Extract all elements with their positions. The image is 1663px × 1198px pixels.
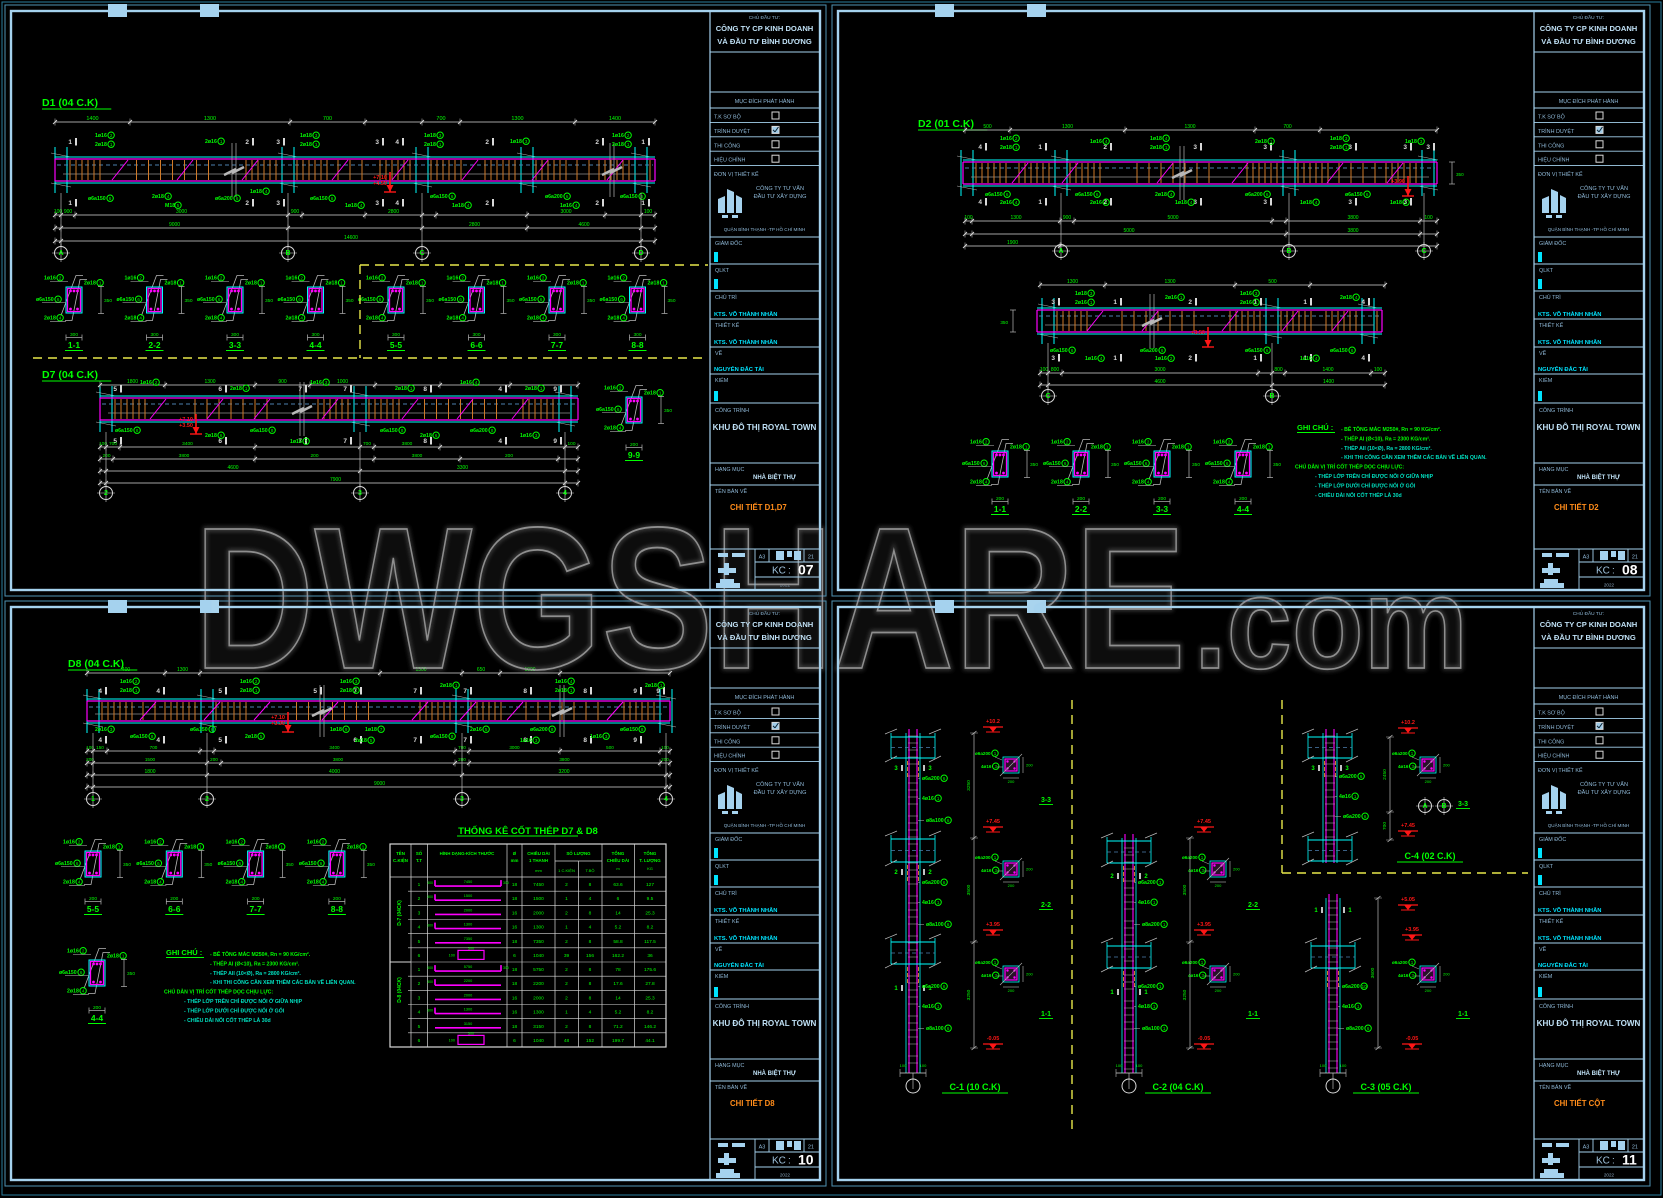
svg-text:18: 18	[512, 896, 518, 902]
svg-text:4: 4	[418, 925, 421, 931]
svg-text:100: 100	[1320, 1063, 1327, 1068]
svg-text:4: 4	[395, 139, 399, 146]
svg-text:3: 3	[1263, 199, 1267, 206]
svg-text:2ø18: 2ø18	[84, 281, 96, 287]
svg-text:350: 350	[346, 298, 354, 304]
svg-text:CHÚ DẪN VỊ TRÍ CỐT THÉP DỌC CH: CHÚ DẪN VỊ TRÍ CỐT THÉP DỌC CHỊU LỰC:	[1295, 463, 1404, 471]
svg-text:3800: 3800	[1347, 215, 1358, 221]
svg-text:5-5: 5-5	[87, 904, 100, 914]
svg-text:350: 350	[1000, 320, 1008, 325]
svg-text:8.2: 8.2	[647, 1010, 654, 1016]
svg-text:300: 300	[427, 980, 433, 984]
svg-text:ø8a100: ø8a100	[926, 1026, 944, 1032]
svg-text:1: 1	[1113, 299, 1117, 306]
svg-text:KTS. VÕ THÀNH NHÂN: KTS. VÕ THÀNH NHÂN	[1538, 311, 1601, 318]
svg-text:1: 1	[1303, 299, 1307, 306]
svg-text:1800: 1800	[144, 769, 155, 775]
svg-text:T.K SƠ BỘ: T.K SƠ BỘ	[1538, 710, 1565, 717]
svg-text:4ø16: 4ø16	[1188, 973, 1199, 978]
svg-text:2ø18: 2ø18	[608, 316, 620, 322]
svg-text:T.T: T.T	[416, 858, 422, 863]
svg-text:KIỂM: KIỂM	[1539, 973, 1553, 980]
svg-text:THỐNG KÊ CỐT THÉP D7 & D8: THỐNG KÊ CỐT THÉP D7 & D8	[458, 825, 598, 837]
svg-text:4-4: 4-4	[1237, 504, 1250, 514]
svg-text:6: 6	[513, 1038, 516, 1044]
svg-text:4ø16: 4ø16	[1398, 973, 1409, 978]
svg-text:300: 300	[150, 332, 158, 338]
svg-text:4: 4	[664, 796, 668, 803]
svg-text:4: 4	[98, 737, 102, 744]
svg-text:2: 2	[245, 200, 249, 207]
svg-text:2: 2	[104, 490, 108, 497]
svg-text:mm: mm	[535, 868, 542, 873]
svg-text:700: 700	[1283, 124, 1292, 130]
svg-text:1300: 1300	[511, 116, 523, 122]
svg-text:+7.45: +7.45	[1401, 823, 1415, 829]
svg-text:THI CÔNG: THI CÔNG	[714, 738, 740, 745]
svg-text:2ø18: 2ø18	[1091, 445, 1103, 451]
svg-text:1: 1	[565, 925, 568, 931]
svg-text:200: 200	[1008, 779, 1015, 784]
svg-text:4: 4	[498, 438, 502, 445]
svg-text:3: 3	[1051, 355, 1055, 362]
svg-text:2-2: 2-2	[1248, 902, 1258, 909]
svg-text:B: B	[1441, 803, 1446, 810]
svg-text:2ø18: 2ø18	[1213, 480, 1225, 486]
svg-text:2ø18: 2ø18	[1330, 145, 1342, 151]
svg-text:- BÊ TÔNG MÁC M250#, Rn = 90: - BÊ TÔNG MÁC M250#, Rn = 90 KG/cm².	[1341, 425, 1442, 433]
svg-text:1-1: 1-1	[1041, 1011, 1051, 1018]
svg-text:5: 5	[218, 737, 222, 744]
svg-text:200: 200	[1425, 988, 1432, 993]
svg-text:200: 200	[310, 453, 318, 459]
svg-text:mm: mm	[511, 858, 519, 863]
svg-text:2ø16: 2ø16	[1240, 300, 1252, 306]
svg-text:1ø16: 1ø16	[67, 949, 79, 955]
svg-text:1: 1	[565, 1010, 568, 1016]
svg-text:2ø18: 2ø18	[525, 386, 537, 392]
svg-text:300: 300	[472, 332, 480, 338]
svg-text:ø6a150: ø6a150	[218, 861, 236, 867]
svg-text:2: 2	[1103, 144, 1107, 151]
svg-text:ø6a150: ø6a150	[130, 734, 148, 740]
svg-text:8-8: 8-8	[631, 340, 644, 350]
svg-text:3-3: 3-3	[1458, 801, 1468, 808]
svg-text:2ø18: 2ø18	[420, 433, 432, 439]
svg-text:4: 4	[418, 1010, 421, 1016]
svg-text:NHÀ BIỆT THỰ: NHÀ BIỆT THỰ	[753, 1069, 796, 1077]
svg-text:GIÁM ĐỐC: GIÁM ĐỐC	[1539, 836, 1566, 843]
svg-text:3150: 3150	[533, 1024, 544, 1030]
svg-text:350: 350	[123, 862, 131, 868]
svg-text:350: 350	[507, 298, 515, 304]
svg-text:18: 18	[512, 967, 518, 973]
svg-text:VẼ: VẼ	[1539, 946, 1547, 953]
svg-text:1: 1	[68, 139, 72, 146]
svg-text:4-4: 4-4	[309, 340, 322, 350]
svg-text:VÀ ĐẦU TƯ BÌNH DƯƠNG: VÀ ĐẦU TƯ BÌNH DƯƠNG	[717, 36, 812, 46]
svg-text:200: 200	[1215, 883, 1222, 888]
svg-text:3800: 3800	[402, 441, 413, 447]
svg-text:ø6a150: ø6a150	[310, 196, 328, 202]
svg-text:D-8 (04CK): D-8 (04CK)	[397, 977, 403, 1003]
svg-text:14: 14	[615, 995, 621, 1001]
svg-text:1ø16: 1ø16	[290, 439, 302, 445]
svg-text:TRÌNH DUYỆT: TRÌNH DUYỆT	[714, 127, 751, 135]
svg-text:3250: 3250	[966, 780, 972, 791]
svg-text:2ø18: 2ø18	[447, 316, 459, 322]
svg-text:QUẬN BÌNH THẠNH -TP HỒ CHÍ MIN: QUẬN BÌNH THẠNH -TP HỒ CHÍ MINH	[724, 822, 806, 828]
svg-text:700: 700	[363, 441, 371, 447]
svg-text:3: 3	[1426, 144, 1430, 151]
svg-text:8: 8	[583, 737, 587, 744]
svg-text:900: 900	[291, 209, 300, 215]
svg-text:39: 39	[564, 953, 570, 959]
svg-text:2ø16: 2ø16	[205, 139, 217, 145]
svg-text:2ø18: 2ø18	[205, 316, 217, 322]
svg-text:5: 5	[113, 386, 117, 393]
svg-text:25.3: 25.3	[645, 995, 655, 1001]
svg-text:1: 1	[1113, 355, 1117, 362]
svg-text:ĐẦU TƯ XÂY DỰNG: ĐẦU TƯ XÂY DỰNG	[754, 789, 807, 796]
svg-text:KTS. VÕ THÀNH NHÂN: KTS. VÕ THÀNH NHÂN	[1538, 339, 1601, 346]
svg-text:- THÉP LỚP TRÊN CHỈ ĐƯỢC NỐI Ở: - THÉP LỚP TRÊN CHỈ ĐƯỢC NỐI Ở GIỮA NHỊP	[1315, 472, 1434, 480]
svg-text:+3.90: +3.90	[1391, 179, 1405, 185]
svg-text:4600: 4600	[578, 222, 589, 228]
svg-text:C-3 (05 C.K): C-3 (05 C.K)	[1360, 1082, 1411, 1092]
svg-text:ø6a150: ø6a150	[620, 194, 638, 200]
svg-text:6-6: 6-6	[470, 340, 483, 350]
svg-text:T.K SƠ BỘ: T.K SƠ BỘ	[1538, 114, 1565, 121]
svg-text:ø8a200: ø8a200	[1142, 922, 1160, 928]
svg-text:D8 (04 C.K): D8 (04 C.K)	[68, 658, 124, 670]
svg-text:900: 900	[64, 209, 73, 215]
svg-text:4: 4	[1361, 355, 1365, 362]
svg-text:1ø18: 1ø18	[300, 133, 312, 139]
svg-text:1ø16: 1ø16	[1132, 440, 1144, 446]
svg-text:300: 300	[392, 332, 400, 338]
svg-text:350: 350	[1192, 462, 1200, 468]
svg-text:4ø18: 4ø18	[1138, 1004, 1150, 1010]
svg-text:CHỦ ĐẦU TƯ:: CHỦ ĐẦU TƯ:	[1573, 610, 1604, 617]
svg-text:3: 3	[1193, 144, 1197, 151]
svg-text:9000: 9000	[374, 781, 385, 787]
svg-text:CÔNG TRÌNH: CÔNG TRÌNH	[715, 1003, 749, 1010]
svg-text:THIẾT KẾ: THIẾT KẾ	[1539, 322, 1564, 329]
svg-text:71.2: 71.2	[613, 1024, 623, 1030]
svg-text:162.2: 162.2	[612, 953, 624, 959]
svg-text:150: 150	[96, 745, 104, 750]
svg-text:9: 9	[553, 438, 557, 445]
svg-text:7-7: 7-7	[551, 340, 564, 350]
svg-text:1: 1	[418, 882, 421, 888]
svg-text:ø8a100: ø8a100	[1142, 1026, 1160, 1032]
svg-text:4ø16: 4ø16	[981, 764, 992, 769]
svg-text:2: 2	[595, 200, 599, 207]
svg-text:200: 200	[89, 896, 97, 902]
svg-text:MỤC ĐÍCH PHÁT HÀNH: MỤC ĐÍCH PHÁT HÀNH	[1559, 98, 1619, 105]
svg-text:2ø18: 2ø18	[1000, 145, 1012, 151]
svg-text:KHU ĐÔ THỊ ROYAL TOWN: KHU ĐÔ THỊ ROYAL TOWN	[1537, 1019, 1641, 1028]
svg-text:1ø16: 1ø16	[527, 276, 539, 282]
svg-text:100: 100	[920, 1063, 927, 1068]
svg-text:- THÉP LỚP DƯỚI CHỈ ĐƯỢC NỐI Ở: - THÉP LỚP DƯỚI CHỈ ĐƯỢC NỐI Ở GỐI	[1315, 481, 1416, 489]
svg-text:TRÌNH DUYỆT: TRÌNH DUYỆT	[1538, 127, 1575, 135]
svg-text:4: 4	[395, 200, 399, 207]
svg-text:16: 16	[512, 925, 518, 931]
svg-text:100: 100	[964, 215, 973, 221]
svg-text:3800: 3800	[179, 453, 190, 459]
svg-text:B: B	[1269, 393, 1274, 400]
svg-text:A3: A3	[1583, 555, 1590, 561]
svg-text:1ø16: 1ø16	[95, 133, 107, 139]
svg-text:CÔNG TRÌNH: CÔNG TRÌNH	[1539, 407, 1573, 414]
svg-text:3250: 3250	[966, 989, 972, 1000]
svg-text:300: 300	[553, 332, 561, 338]
svg-text:ø6a150: ø6a150	[1043, 461, 1061, 467]
svg-text:1300: 1300	[204, 116, 216, 122]
svg-text:63.6: 63.6	[613, 882, 623, 888]
svg-text:1ø18: 1ø18	[1075, 291, 1087, 297]
svg-text:1ø18: 1ø18	[510, 139, 522, 145]
svg-text:- THÉP LỚP TRÊN CHỈ ĐƯỢC NỐI Ở: - THÉP LỚP TRÊN CHỈ ĐƯỢC NỐI Ở GIỮA NHỊP	[184, 997, 303, 1005]
svg-text:2: 2	[1188, 299, 1192, 306]
svg-text:21: 21	[1632, 555, 1638, 561]
svg-text:1ø16: 1ø16	[520, 433, 532, 439]
svg-text:5000: 5000	[1123, 228, 1134, 234]
svg-text:4: 4	[978, 144, 982, 151]
svg-text:ø6a150: ø6a150	[36, 297, 54, 303]
svg-text:+3.95: +3.95	[986, 922, 1000, 928]
svg-text:ø6a150: ø6a150	[55, 861, 73, 867]
svg-text:3000: 3000	[1154, 367, 1165, 373]
svg-text:3-3: 3-3	[229, 340, 242, 350]
svg-text:ø6a150: ø6a150	[1205, 461, 1223, 467]
svg-text:200: 200	[661, 757, 669, 762]
svg-text:C-4 (02 C.K): C-4 (02 C.K)	[1404, 851, 1455, 861]
svg-text:2: 2	[565, 910, 568, 916]
svg-text:THI CÔNG: THI CÔNG	[1538, 738, 1564, 745]
svg-text:200: 200	[1233, 867, 1240, 872]
svg-text:3800: 3800	[559, 757, 570, 762]
svg-text:350: 350	[664, 408, 672, 414]
svg-text:C: C	[1045, 393, 1050, 400]
svg-text:+5.05: +5.05	[1401, 897, 1415, 903]
svg-text:4ø16: 4ø16	[1138, 900, 1150, 906]
svg-text:ø6a200: ø6a200	[922, 984, 940, 990]
svg-text:1ø18: 1ø18	[330, 727, 342, 733]
svg-text:58.8: 58.8	[613, 939, 623, 945]
svg-text:NGUYỄN ĐẮC TÀI: NGUYỄN ĐẮC TÀI	[714, 365, 764, 373]
svg-text:2ø18: 2ø18	[245, 734, 257, 740]
svg-text:700: 700	[323, 116, 332, 122]
svg-text:2ø18: 2ø18	[286, 316, 298, 322]
svg-text:ø6a150: ø6a150	[136, 861, 154, 867]
svg-text:2: 2	[418, 896, 421, 902]
svg-text:8: 8	[423, 386, 427, 393]
svg-text:2ø16: 2ø16	[1000, 200, 1012, 206]
svg-text:NGUYỄN ĐẮC TÀI: NGUYỄN ĐẮC TÀI	[1538, 961, 1588, 969]
svg-text:1ø16: 1ø16	[1085, 356, 1097, 362]
svg-text:1 THANH: 1 THANH	[529, 858, 548, 863]
svg-text:3: 3	[276, 200, 280, 207]
svg-text:+3.30: +3.30	[271, 721, 285, 727]
svg-text:900: 900	[278, 379, 287, 385]
svg-text:1: 1	[641, 200, 645, 207]
svg-text:D: D	[638, 250, 643, 257]
svg-text:3: 3	[418, 995, 421, 1001]
svg-text:300: 300	[311, 332, 319, 338]
svg-text:4ø16: 4ø16	[1188, 868, 1199, 873]
svg-text:2800: 2800	[388, 209, 399, 215]
svg-text:DWGSHARE: DWGSHARE	[194, 485, 1186, 711]
svg-text:CHIỀU DÀI: CHIỀU DÀI	[607, 858, 629, 863]
svg-text:ø6a200: ø6a200	[922, 776, 940, 782]
svg-text:4: 4	[1361, 299, 1365, 306]
svg-text:5: 5	[418, 1024, 421, 1030]
svg-text:08: 08	[1622, 562, 1638, 578]
svg-text:SỐ: SỐ	[416, 851, 423, 856]
svg-text:B: B	[1286, 248, 1291, 255]
svg-text:4: 4	[498, 386, 502, 393]
svg-text:A: A	[1058, 248, 1063, 255]
svg-text:7: 7	[298, 386, 302, 393]
svg-text:200: 200	[630, 442, 638, 448]
svg-text:1900: 1900	[1007, 240, 1018, 246]
svg-text:2ø18: 2ø18	[567, 281, 579, 287]
svg-text:200: 200	[170, 896, 178, 902]
svg-text:ø8a200: ø8a200	[1346, 1026, 1364, 1032]
svg-text:1ø16: 1ø16	[520, 738, 532, 744]
svg-text:3250: 3250	[1182, 989, 1188, 1000]
svg-text:8.2: 8.2	[647, 925, 654, 931]
svg-text:78: 78	[615, 967, 621, 973]
svg-text:3: 3	[1403, 144, 1407, 151]
svg-text:ø6a200: ø6a200	[1392, 751, 1408, 756]
svg-text:MỤC ĐÍCH PHÁT HÀNH: MỤC ĐÍCH PHÁT HÀNH	[735, 98, 795, 105]
svg-text:1300: 1300	[177, 667, 188, 673]
svg-text:1400: 1400	[1323, 379, 1334, 385]
svg-text:3: 3	[418, 910, 421, 916]
svg-text:QUẬN BÌNH THẠNH -TP HỒ CHÍ MIN: QUẬN BÌNH THẠNH -TP HỒ CHÍ MINH	[1548, 226, 1630, 232]
svg-text:2: 2	[418, 981, 421, 987]
svg-text:ø6a150: ø6a150	[430, 734, 448, 740]
svg-text:KHU ĐÔ THỊ ROYAL TOWN: KHU ĐÔ THỊ ROYAL TOWN	[1537, 423, 1641, 432]
svg-text:300: 300	[231, 332, 239, 338]
svg-text:200: 200	[333, 896, 341, 902]
svg-text:1ø16: 1ø16	[1300, 356, 1312, 362]
svg-text:2000: 2000	[464, 908, 472, 912]
svg-text:2: 2	[565, 981, 568, 987]
svg-text:ø6a150: ø6a150	[600, 297, 618, 303]
svg-text:350: 350	[587, 298, 595, 304]
svg-text:3000: 3000	[509, 745, 520, 750]
svg-text:200: 200	[210, 757, 218, 762]
svg-text:THIẾT KẾ: THIẾT KẾ	[1539, 918, 1564, 925]
svg-text:CÔNG TY TƯ VẤN: CÔNG TY TƯ VẤN	[756, 185, 804, 192]
svg-text:1000: 1000	[337, 379, 348, 385]
svg-text:1ø16: 1ø16	[205, 276, 217, 282]
svg-text:2ø18: 2ø18	[144, 880, 156, 886]
svg-text:8: 8	[589, 995, 592, 1001]
svg-text:3500: 3500	[1182, 884, 1188, 895]
svg-text:2: 2	[565, 882, 568, 888]
svg-text:3: 3	[375, 200, 379, 207]
svg-text:2: 2	[565, 995, 568, 1001]
svg-text:100: 100	[661, 745, 669, 750]
svg-text:300: 300	[427, 924, 433, 928]
svg-text:7450: 7450	[533, 882, 544, 888]
svg-text:1ø16: 1ø16	[144, 840, 156, 846]
svg-text:2ø18: 2ø18	[230, 386, 242, 392]
svg-text:200: 200	[1233, 972, 1240, 977]
svg-text:- THÉP LỚP DƯỚI CHỈ ĐƯỢC NỐI Ở: - THÉP LỚP DƯỚI CHỈ ĐƯỢC NỐI Ở GỐI	[184, 1006, 285, 1014]
svg-text:1ø18: 1ø18	[452, 203, 464, 209]
svg-text:2ø16: 2ø16	[470, 727, 482, 733]
svg-text:2022: 2022	[780, 1173, 791, 1178]
svg-text:2ø18: 2ø18	[1340, 295, 1352, 301]
svg-text:CHỦ TRÌ: CHỦ TRÌ	[715, 294, 737, 301]
svg-text:3400: 3400	[329, 745, 340, 750]
svg-text:ø6a150: ø6a150	[439, 297, 457, 303]
svg-text:6: 6	[617, 896, 620, 902]
svg-text:44.1: 44.1	[645, 1038, 655, 1044]
svg-text:1ø16: 1ø16	[604, 386, 616, 392]
svg-text:10: 10	[798, 1152, 814, 1168]
svg-text:ĐƠN VỊ THIẾT KẾ: ĐƠN VỊ THIẾT KẾ	[1538, 767, 1583, 774]
svg-text:THI CÔNG: THI CÔNG	[1538, 142, 1564, 149]
svg-text:QLKT: QLKT	[715, 268, 730, 274]
svg-text:1300: 1300	[533, 1010, 544, 1016]
svg-text:2ø18: 2ø18	[366, 316, 378, 322]
svg-text:-0.05: -0.05	[1198, 1036, 1211, 1042]
svg-text:100: 100	[449, 1038, 455, 1042]
svg-text:1ø16: 1ø16	[1155, 356, 1167, 362]
svg-text:ø6a150: ø6a150	[1345, 192, 1363, 198]
svg-text:4: 4	[98, 688, 102, 695]
svg-text:NGUYỄN ĐẮC TÀI: NGUYỄN ĐẮC TÀI	[714, 961, 764, 969]
svg-text:2ø18: 2ø18	[604, 426, 616, 432]
svg-text:ø6a200: ø6a200	[215, 196, 233, 202]
svg-text:D-7 (04CK): D-7 (04CK)	[397, 900, 403, 926]
svg-text:3500: 3500	[966, 884, 972, 895]
svg-text:ø6a200: ø6a200	[1392, 960, 1408, 965]
svg-text:21: 21	[1632, 1145, 1638, 1151]
svg-text:2ø16: 2ø16	[1075, 300, 1087, 306]
svg-text:4ø16: 4ø16	[1398, 764, 1409, 769]
svg-text:14: 14	[615, 910, 621, 916]
svg-text:2: 2	[565, 967, 568, 973]
svg-text:1ø16: 1ø16	[366, 276, 378, 282]
svg-text:48: 48	[564, 1038, 570, 1044]
svg-text:6: 6	[418, 1038, 421, 1044]
svg-text:18: 18	[512, 1024, 518, 1030]
svg-text:ø6a150: ø6a150	[250, 428, 268, 434]
svg-text:5750: 5750	[533, 967, 544, 973]
svg-text:ĐẦU TƯ XÂY DỰNG: ĐẦU TƯ XÂY DỰNG	[1578, 789, 1631, 796]
svg-text:14600: 14600	[344, 235, 358, 241]
svg-text:CHỦ TRÌ: CHỦ TRÌ	[1539, 890, 1561, 897]
svg-text:HIỆU CHỈNH: HIỆU CHỈNH	[1538, 156, 1570, 164]
svg-text:+7.45: +7.45	[986, 819, 1000, 825]
svg-text:700: 700	[109, 441, 117, 447]
svg-text:QLKT: QLKT	[1539, 268, 1554, 274]
svg-text:2ø18: 2ø18	[245, 281, 257, 287]
svg-text:3: 3	[1263, 144, 1267, 151]
svg-text:1ø16: 1ø16	[226, 840, 238, 846]
svg-text:ø6a200: ø6a200	[1343, 814, 1361, 820]
svg-text:100: 100	[1136, 1063, 1143, 1068]
